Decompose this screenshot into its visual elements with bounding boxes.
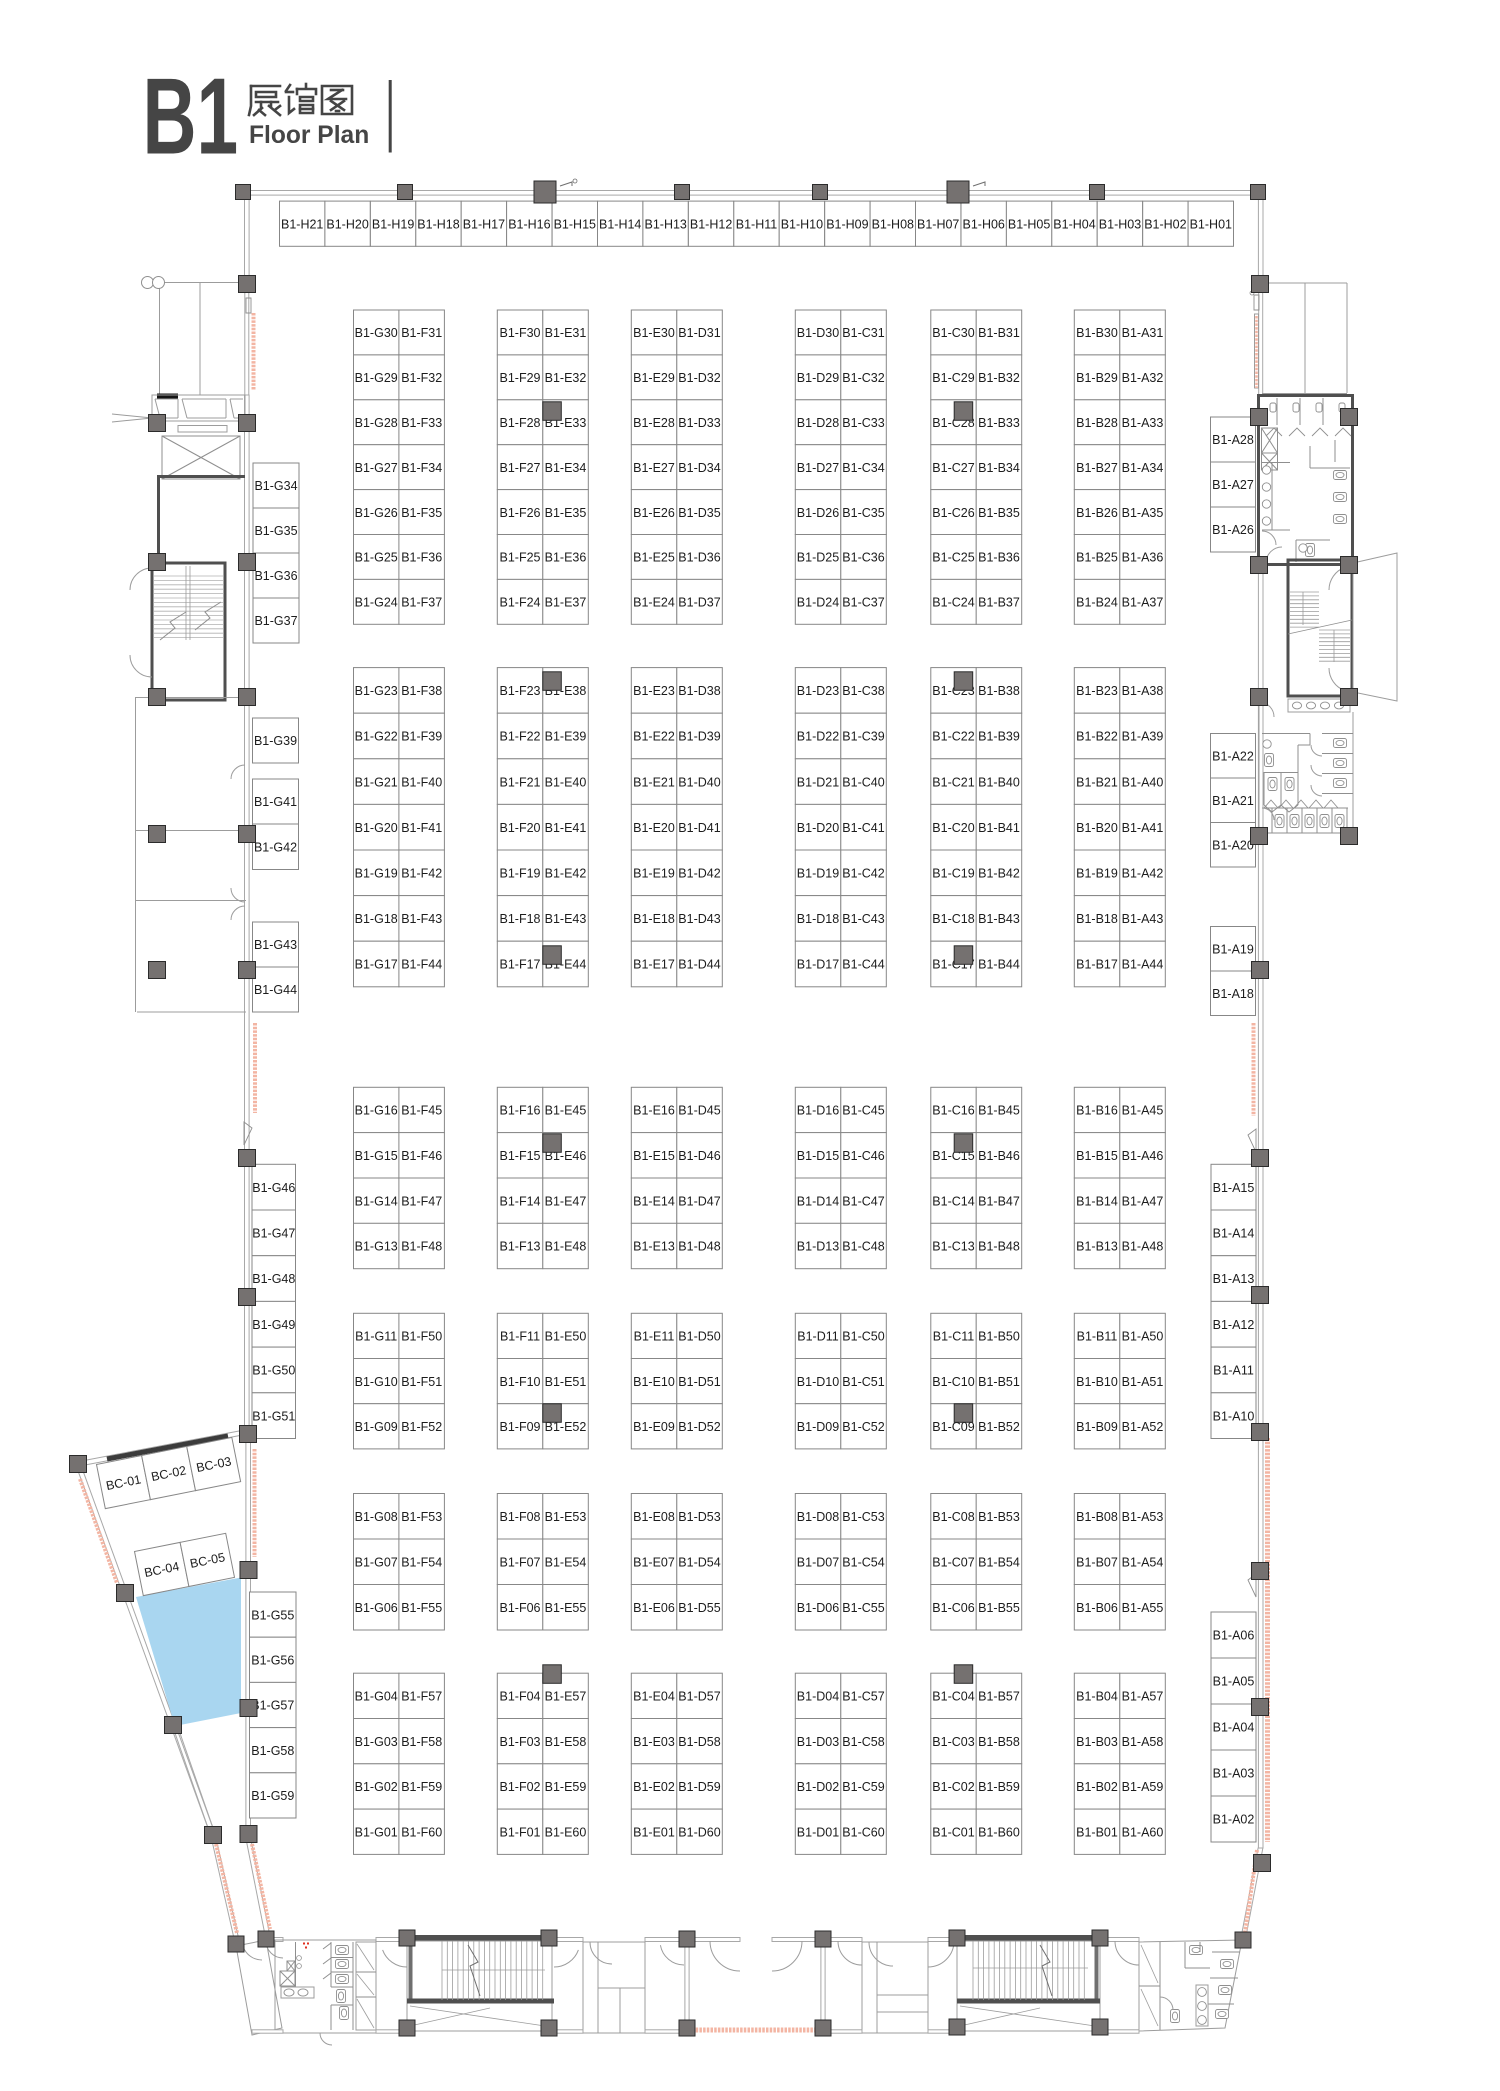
svg-text:B1-E36: B1-E36 <box>545 551 587 565</box>
svg-text:B1-E31: B1-E31 <box>545 326 587 340</box>
svg-text:B1-E03: B1-E03 <box>633 1735 675 1749</box>
svg-text:B1-A02: B1-A02 <box>1213 1813 1255 1827</box>
svg-text:B1-D22: B1-D22 <box>797 730 839 744</box>
svg-text:B1-F25: B1-F25 <box>500 551 541 565</box>
svg-text:B1-B32: B1-B32 <box>978 371 1020 385</box>
svg-text:B1-C42: B1-C42 <box>842 867 884 881</box>
svg-text:B1-D27: B1-D27 <box>797 461 839 475</box>
svg-text:B1-F39: B1-F39 <box>401 730 442 744</box>
svg-text:B1-E51: B1-E51 <box>545 1375 587 1389</box>
svg-text:B1-E16: B1-E16 <box>633 1104 675 1118</box>
svg-text:B1-F06: B1-F06 <box>500 1601 541 1615</box>
svg-text:B1-G25: B1-G25 <box>355 551 398 565</box>
svg-text:B1-F10: B1-F10 <box>500 1375 541 1389</box>
svg-text:B1-A12: B1-A12 <box>1213 1318 1255 1332</box>
svg-text:B1-D50: B1-D50 <box>678 1330 720 1344</box>
svg-text:B1-C52: B1-C52 <box>842 1420 884 1434</box>
svg-text:B1-A41: B1-A41 <box>1122 821 1164 835</box>
svg-text:B1-G20: B1-G20 <box>355 821 398 835</box>
svg-text:B1-A44: B1-A44 <box>1122 958 1164 972</box>
svg-text:B1-G18: B1-G18 <box>355 912 398 926</box>
svg-text:B1-F30: B1-F30 <box>500 326 541 340</box>
svg-text:B1-G22: B1-G22 <box>355 730 398 744</box>
svg-text:B1-E13: B1-E13 <box>633 1240 675 1254</box>
svg-text:B1-A46: B1-A46 <box>1122 1149 1164 1163</box>
svg-text:B1-G06: B1-G06 <box>355 1601 398 1615</box>
svg-text:B1-C60: B1-C60 <box>842 1826 884 1840</box>
svg-text:B1-G49: B1-G49 <box>252 1318 295 1332</box>
svg-text:B1-A37: B1-A37 <box>1122 596 1164 610</box>
svg-text:B1-A53: B1-A53 <box>1122 1510 1164 1524</box>
svg-text:B1-A28: B1-A28 <box>1212 433 1254 447</box>
svg-text:B1-B09: B1-B09 <box>1076 1420 1118 1434</box>
svg-text:B1-H17: B1-H17 <box>463 217 505 231</box>
svg-text:B1-A52: B1-A52 <box>1122 1420 1164 1434</box>
svg-text:B1-F02: B1-F02 <box>500 1780 541 1794</box>
svg-text:B1-H01: B1-H01 <box>1190 217 1232 231</box>
svg-text:B1-E02: B1-E02 <box>633 1780 675 1794</box>
svg-text:B1-C44: B1-C44 <box>842 958 884 972</box>
svg-text:B1-D54: B1-D54 <box>678 1556 720 1570</box>
svg-text:B1-E45: B1-E45 <box>545 1104 587 1118</box>
svg-text:B1-B28: B1-B28 <box>1076 416 1118 430</box>
svg-text:B1-D47: B1-D47 <box>678 1194 720 1208</box>
svg-text:B1-C08: B1-C08 <box>932 1510 974 1524</box>
svg-text:B1-H16: B1-H16 <box>508 217 550 231</box>
svg-text:B1-F38: B1-F38 <box>401 684 442 698</box>
svg-text:B1-B14: B1-B14 <box>1076 1194 1118 1208</box>
svg-text:B1-E11: B1-E11 <box>634 1330 675 1344</box>
svg-text:B1-H02: B1-H02 <box>1144 217 1186 231</box>
svg-text:B1-F47: B1-F47 <box>401 1194 442 1208</box>
svg-text:B1-F18: B1-F18 <box>500 912 541 926</box>
svg-text:B1-F16: B1-F16 <box>500 1104 541 1118</box>
svg-text:B1-D11: B1-D11 <box>797 1330 839 1344</box>
svg-text:B1-G43: B1-G43 <box>254 938 297 952</box>
svg-text:B1-A38: B1-A38 <box>1122 684 1164 698</box>
svg-text:B1-A43: B1-A43 <box>1122 912 1164 926</box>
svg-text:B1-F17: B1-F17 <box>500 958 541 972</box>
svg-text:B1-B34: B1-B34 <box>978 461 1020 475</box>
svg-text:B1-G01: B1-G01 <box>355 1826 398 1840</box>
svg-text:B1-F22: B1-F22 <box>500 730 541 744</box>
svg-text:B1-D18: B1-D18 <box>797 912 839 926</box>
svg-text:B1-A58: B1-A58 <box>1122 1735 1164 1749</box>
svg-text:B1-C25: B1-C25 <box>932 551 974 565</box>
svg-text:B1-G16: B1-G16 <box>355 1104 398 1118</box>
svg-text:B1-G11: B1-G11 <box>355 1330 397 1344</box>
svg-text:B1-B26: B1-B26 <box>1076 506 1118 520</box>
svg-text:B1-D20: B1-D20 <box>797 821 839 835</box>
svg-text:B1-D36: B1-D36 <box>678 551 720 565</box>
svg-text:B1-D45: B1-D45 <box>678 1104 720 1118</box>
svg-text:B1-C57: B1-C57 <box>842 1690 884 1704</box>
svg-text:B1-H14: B1-H14 <box>599 217 641 231</box>
svg-text:B1-E34: B1-E34 <box>545 461 587 475</box>
svg-text:B1-F33: B1-F33 <box>401 416 442 430</box>
svg-text:B1-B24: B1-B24 <box>1076 596 1118 610</box>
svg-text:B1-D52: B1-D52 <box>678 1420 720 1434</box>
svg-text:B1-F29: B1-F29 <box>500 371 541 385</box>
svg-text:B1-B58: B1-B58 <box>978 1735 1020 1749</box>
svg-text:B1-A03: B1-A03 <box>1213 1767 1255 1781</box>
svg-text:B1-F21: B1-F21 <box>500 775 541 789</box>
svg-text:B1-B27: B1-B27 <box>1076 461 1118 475</box>
svg-text:B1-B44: B1-B44 <box>978 958 1020 972</box>
svg-text:B1-E29: B1-E29 <box>633 371 675 385</box>
svg-text:B1-D42: B1-D42 <box>678 867 720 881</box>
svg-text:B1-F24: B1-F24 <box>500 596 541 610</box>
svg-text:B1-C59: B1-C59 <box>842 1780 884 1794</box>
svg-text:B1-H09: B1-H09 <box>826 217 868 231</box>
svg-text:B1-C02: B1-C02 <box>932 1780 974 1794</box>
svg-text:B1-E37: B1-E37 <box>545 596 587 610</box>
svg-text:B1-D25: B1-D25 <box>797 551 839 565</box>
svg-text:B1-D29: B1-D29 <box>797 371 839 385</box>
svg-text:B1-E43: B1-E43 <box>545 912 587 926</box>
svg-text:B1-G39: B1-G39 <box>254 734 297 748</box>
svg-text:B1-D59: B1-D59 <box>678 1780 720 1794</box>
svg-text:B1-G56: B1-G56 <box>251 1654 294 1668</box>
svg-text:B1-B43: B1-B43 <box>978 912 1020 926</box>
svg-text:B1-A10: B1-A10 <box>1213 1409 1255 1423</box>
svg-text:B1-A14: B1-A14 <box>1213 1227 1255 1241</box>
svg-text:B1-E32: B1-E32 <box>545 371 587 385</box>
svg-text:B1-F34: B1-F34 <box>401 461 442 475</box>
svg-text:B1-E25: B1-E25 <box>633 551 675 565</box>
svg-text:B1-B47: B1-B47 <box>978 1194 1020 1208</box>
svg-text:B1-E60: B1-E60 <box>545 1826 587 1840</box>
svg-text:B1-G15: B1-G15 <box>355 1149 398 1163</box>
svg-text:B1-B37: B1-B37 <box>978 596 1020 610</box>
svg-text:B1-C50: B1-C50 <box>842 1330 884 1344</box>
svg-text:B1-E19: B1-E19 <box>633 867 675 881</box>
svg-text:B1-F04: B1-F04 <box>500 1690 541 1704</box>
svg-text:B1-C27: B1-C27 <box>932 461 974 475</box>
svg-text:B1-B35: B1-B35 <box>978 506 1020 520</box>
svg-text:B1-F60: B1-F60 <box>401 1826 442 1840</box>
svg-text:B1-A33: B1-A33 <box>1122 416 1164 430</box>
svg-text:B1-C18: B1-C18 <box>932 912 974 926</box>
svg-text:B1-G14: B1-G14 <box>355 1194 398 1208</box>
svg-text:B1-E41: B1-E41 <box>545 821 587 835</box>
svg-text:B1-D48: B1-D48 <box>678 1240 720 1254</box>
svg-text:B1-C29: B1-C29 <box>932 371 974 385</box>
svg-text:B1-D19: B1-D19 <box>797 867 839 881</box>
svg-text:B1-C30: B1-C30 <box>932 326 974 340</box>
svg-text:B1-G17: B1-G17 <box>355 958 398 972</box>
svg-text:B1-C21: B1-C21 <box>932 775 974 789</box>
svg-text:B1-F48: B1-F48 <box>401 1240 442 1254</box>
svg-text:B1-E18: B1-E18 <box>633 912 675 926</box>
svg-text:B1-G24: B1-G24 <box>355 596 398 610</box>
svg-text:B1-C54: B1-C54 <box>842 1556 884 1570</box>
svg-text:B1-H08: B1-H08 <box>872 217 914 231</box>
svg-text:B1-D43: B1-D43 <box>678 912 720 926</box>
svg-text:B1-F23: B1-F23 <box>500 684 541 698</box>
svg-text:B1-F44: B1-F44 <box>401 958 442 972</box>
svg-text:B1-E30: B1-E30 <box>633 326 675 340</box>
svg-text:B1-G34: B1-G34 <box>254 479 297 493</box>
svg-text:B1-B17: B1-B17 <box>1076 958 1118 972</box>
svg-text:B1-G41: B1-G41 <box>254 795 297 809</box>
svg-text:B1-C03: B1-C03 <box>932 1735 974 1749</box>
svg-text:B1-C20: B1-C20 <box>932 821 974 835</box>
svg-text:B1-B19: B1-B19 <box>1076 867 1118 881</box>
svg-text:B1-F50: B1-F50 <box>401 1330 442 1344</box>
svg-text:B1-F42: B1-F42 <box>401 867 442 881</box>
svg-text:B1-B41: B1-B41 <box>978 821 1020 835</box>
svg-text:B1-E24: B1-E24 <box>633 596 675 610</box>
svg-text:B1-B22: B1-B22 <box>1076 730 1118 744</box>
svg-text:B1-A34: B1-A34 <box>1122 461 1164 475</box>
svg-text:B1-G35: B1-G35 <box>254 524 297 538</box>
svg-text:B1-H21: B1-H21 <box>281 217 323 231</box>
svg-text:B1-D33: B1-D33 <box>678 416 720 430</box>
svg-text:B1-D04: B1-D04 <box>797 1690 839 1704</box>
svg-text:B1-C11: B1-C11 <box>933 1330 975 1344</box>
svg-text:B1-E27: B1-E27 <box>633 461 675 475</box>
svg-text:B1-D02: B1-D02 <box>797 1780 839 1794</box>
svg-text:B1-E48: B1-E48 <box>545 1240 587 1254</box>
svg-text:B1-A06: B1-A06 <box>1213 1629 1255 1643</box>
svg-text:B1-E22: B1-E22 <box>633 730 675 744</box>
svg-text:B1-C22: B1-C22 <box>932 730 974 744</box>
svg-text:B1-E21: B1-E21 <box>633 775 675 789</box>
svg-text:B1-F26: B1-F26 <box>500 506 541 520</box>
svg-text:B1-D01: B1-D01 <box>797 1826 839 1840</box>
svg-text:B1-F13: B1-F13 <box>500 1240 541 1254</box>
svg-text:B1-G08: B1-G08 <box>355 1510 398 1524</box>
svg-text:B1-G10: B1-G10 <box>355 1375 398 1389</box>
svg-text:B1-D14: B1-D14 <box>797 1194 839 1208</box>
svg-text:B1-C58: B1-C58 <box>842 1735 884 1749</box>
svg-text:B1-D30: B1-D30 <box>797 326 839 340</box>
svg-text:B1-D60: B1-D60 <box>678 1826 720 1840</box>
svg-text:B1-A50: B1-A50 <box>1122 1330 1164 1344</box>
svg-text:B1-G50: B1-G50 <box>252 1364 295 1378</box>
svg-text:B1-G02: B1-G02 <box>355 1780 398 1794</box>
svg-text:B1-G03: B1-G03 <box>355 1735 398 1749</box>
svg-text:B1-B36: B1-B36 <box>978 551 1020 565</box>
svg-text:B1-C06: B1-C06 <box>932 1601 974 1615</box>
svg-text:B1-E54: B1-E54 <box>545 1556 587 1570</box>
svg-text:B1-C07: B1-C07 <box>932 1556 974 1570</box>
svg-text:B1-G57: B1-G57 <box>251 1699 294 1713</box>
svg-text:B1-F08: B1-F08 <box>500 1510 541 1524</box>
svg-text:B1-H19: B1-H19 <box>372 217 414 231</box>
svg-text:B1-G44: B1-G44 <box>254 983 297 997</box>
svg-text:B1-B29: B1-B29 <box>1076 371 1118 385</box>
svg-text:B1-B02: B1-B02 <box>1076 1780 1118 1794</box>
svg-text:B1-D09: B1-D09 <box>797 1420 839 1434</box>
svg-text:B1-E20: B1-E20 <box>633 821 675 835</box>
svg-text:B1-A15: B1-A15 <box>1213 1181 1255 1195</box>
svg-text:B1-E10: B1-E10 <box>633 1375 675 1389</box>
svg-text:B1-E55: B1-E55 <box>545 1601 587 1615</box>
svg-text:B1-F52: B1-F52 <box>401 1420 442 1434</box>
svg-text:B1-B33: B1-B33 <box>978 416 1020 430</box>
svg-text:B1-A35: B1-A35 <box>1122 506 1164 520</box>
svg-text:B1-H13: B1-H13 <box>645 217 687 231</box>
svg-text:B1-C32: B1-C32 <box>842 371 884 385</box>
svg-text:B1-B54: B1-B54 <box>978 1556 1020 1570</box>
svg-text:B1-B53: B1-B53 <box>978 1510 1020 1524</box>
svg-text:B1-H18: B1-H18 <box>417 217 459 231</box>
svg-text:B1-E28: B1-E28 <box>633 416 675 430</box>
svg-text:B1-C46: B1-C46 <box>842 1149 884 1163</box>
svg-text:B1-A18: B1-A18 <box>1212 987 1254 1001</box>
svg-text:B1-B15: B1-B15 <box>1076 1149 1118 1163</box>
svg-text:B1-E39: B1-E39 <box>545 730 587 744</box>
svg-text:B1-E23: B1-E23 <box>633 684 675 698</box>
svg-text:B1-C33: B1-C33 <box>842 416 884 430</box>
svg-text:B1-F11: B1-F11 <box>500 1330 540 1344</box>
svg-text:B1-B06: B1-B06 <box>1076 1601 1118 1615</box>
svg-text:B1-B38: B1-B38 <box>978 684 1020 698</box>
svg-text:B1-A19: B1-A19 <box>1212 943 1254 957</box>
svg-text:B1-D57: B1-D57 <box>678 1690 720 1704</box>
svg-text:B1-B59: B1-B59 <box>978 1780 1020 1794</box>
svg-text:B1-C34: B1-C34 <box>842 461 884 475</box>
svg-text:B1-D41: B1-D41 <box>678 821 720 835</box>
svg-text:B1-G28: B1-G28 <box>355 416 398 430</box>
svg-text:B1-A42: B1-A42 <box>1122 867 1164 881</box>
svg-text:B1-D03: B1-D03 <box>797 1735 839 1749</box>
svg-text:B1-E57: B1-E57 <box>545 1690 587 1704</box>
svg-text:B1-C53: B1-C53 <box>842 1510 884 1524</box>
svg-text:B1-G59: B1-G59 <box>251 1789 294 1803</box>
svg-text:B1-C24: B1-C24 <box>932 596 974 610</box>
svg-text:B1-F35: B1-F35 <box>401 506 442 520</box>
svg-text:B1-E14: B1-E14 <box>633 1194 675 1208</box>
svg-text:B1-G29: B1-G29 <box>355 371 398 385</box>
svg-text:B1-B18: B1-B18 <box>1076 912 1118 926</box>
svg-text:B1-D23: B1-D23 <box>797 684 839 698</box>
svg-text:B1-F46: B1-F46 <box>401 1149 442 1163</box>
svg-text:B1-F55: B1-F55 <box>401 1601 442 1615</box>
svg-text:B1-D38: B1-D38 <box>678 684 720 698</box>
svg-text:B1-E15: B1-E15 <box>633 1149 675 1163</box>
svg-text:B1-D55: B1-D55 <box>678 1601 720 1615</box>
svg-text:B1-A05: B1-A05 <box>1213 1675 1255 1689</box>
svg-text:B1-B08: B1-B08 <box>1076 1510 1118 1524</box>
svg-text:B1-A57: B1-A57 <box>1122 1690 1164 1704</box>
svg-text:B1-B45: B1-B45 <box>978 1104 1020 1118</box>
svg-text:B1-D15: B1-D15 <box>797 1149 839 1163</box>
svg-text:B1-D10: B1-D10 <box>797 1375 839 1389</box>
svg-text:B1-E47: B1-E47 <box>545 1194 587 1208</box>
svg-text:B1-B20: B1-B20 <box>1076 821 1118 835</box>
svg-text:B1-A59: B1-A59 <box>1122 1780 1164 1794</box>
svg-text:B1-H20: B1-H20 <box>326 217 368 231</box>
svg-text:B1-F32: B1-F32 <box>401 371 442 385</box>
svg-text:B1-D34: B1-D34 <box>678 461 720 475</box>
svg-text:B1-F53: B1-F53 <box>401 1510 442 1524</box>
svg-text:B1-B07: B1-B07 <box>1076 1556 1118 1570</box>
svg-text:B1-C26: B1-C26 <box>932 506 974 520</box>
svg-text:B1-B10: B1-B10 <box>1076 1375 1118 1389</box>
svg-text:B1-C10: B1-C10 <box>932 1375 974 1389</box>
svg-text:B1-G04: B1-G04 <box>355 1690 398 1704</box>
svg-text:B1-E42: B1-E42 <box>545 867 587 881</box>
svg-text:B1-D24: B1-D24 <box>797 596 839 610</box>
svg-text:B1-D37: B1-D37 <box>678 596 720 610</box>
svg-text:B1-A22: B1-A22 <box>1212 750 1254 764</box>
svg-text:B1-B03: B1-B03 <box>1076 1735 1118 1749</box>
svg-text:B1-D35: B1-D35 <box>678 506 720 520</box>
svg-text:B1-E58: B1-E58 <box>545 1735 587 1749</box>
svg-text:B1-D06: B1-D06 <box>797 1601 839 1615</box>
svg-text:B1-E01: B1-E01 <box>633 1826 675 1840</box>
svg-text:Floor Plan: Floor Plan <box>249 122 369 149</box>
svg-text:B1-F14: B1-F14 <box>500 1194 541 1208</box>
svg-text:B1-A40: B1-A40 <box>1122 775 1164 789</box>
svg-text:B1-E08: B1-E08 <box>633 1510 675 1524</box>
svg-text:B1-C36: B1-C36 <box>842 551 884 565</box>
svg-text:B1-A20: B1-A20 <box>1212 839 1254 853</box>
svg-text:B1-E17: B1-E17 <box>633 958 675 972</box>
svg-text:B1-C47: B1-C47 <box>842 1194 884 1208</box>
svg-text:B1-D13: B1-D13 <box>797 1240 839 1254</box>
svg-text:B1-A51: B1-A51 <box>1122 1375 1164 1389</box>
svg-text:B1-F37: B1-F37 <box>401 596 442 610</box>
svg-text:B1-G19: B1-G19 <box>355 867 398 881</box>
svg-text:B1-G13: B1-G13 <box>355 1240 398 1254</box>
svg-text:B1-B52: B1-B52 <box>978 1420 1020 1434</box>
svg-text:B1-B46: B1-B46 <box>978 1149 1020 1163</box>
svg-text:B1-C51: B1-C51 <box>842 1375 884 1389</box>
svg-text:B1-A48: B1-A48 <box>1122 1240 1164 1254</box>
svg-text:B1-B04: B1-B04 <box>1076 1690 1118 1704</box>
svg-text:B1-F31: B1-F31 <box>401 326 442 340</box>
svg-text:B1-G58: B1-G58 <box>251 1744 294 1758</box>
svg-text:B1-C35: B1-C35 <box>842 506 884 520</box>
svg-text:B1-F01: B1-F01 <box>500 1826 541 1840</box>
svg-text:B1-B11: B1-B11 <box>1077 1330 1118 1344</box>
svg-text:B1-A60: B1-A60 <box>1122 1826 1164 1840</box>
svg-text:B1-C41: B1-C41 <box>842 821 884 835</box>
svg-text:B1-C19: B1-C19 <box>932 867 974 881</box>
svg-text:B1-E53: B1-E53 <box>545 1510 587 1524</box>
svg-text:B1-D39: B1-D39 <box>678 730 720 744</box>
svg-text:B1-C13: B1-C13 <box>932 1240 974 1254</box>
svg-text:B1-G23: B1-G23 <box>355 684 398 698</box>
svg-text:B1-A26: B1-A26 <box>1212 523 1254 537</box>
svg-text:B1-C38: B1-C38 <box>842 684 884 698</box>
svg-text:B1-E04: B1-E04 <box>633 1690 675 1704</box>
svg-text:B1-A11: B1-A11 <box>1213 1364 1254 1378</box>
svg-text:B1-B55: B1-B55 <box>978 1601 1020 1615</box>
svg-text:B1-G55: B1-G55 <box>251 1608 294 1622</box>
svg-text:B1-H15: B1-H15 <box>554 217 596 231</box>
svg-text:B1-F51: B1-F51 <box>401 1375 442 1389</box>
svg-text:B1-F28: B1-F28 <box>500 416 541 430</box>
svg-text:B1-C43: B1-C43 <box>842 912 884 926</box>
svg-text:B1-D08: B1-D08 <box>797 1510 839 1524</box>
svg-text:B1-F58: B1-F58 <box>401 1735 442 1749</box>
svg-text:B1-B21: B1-B21 <box>1076 775 1118 789</box>
svg-text:B1-D31: B1-D31 <box>678 326 720 340</box>
svg-text:B1-D58: B1-D58 <box>678 1735 720 1749</box>
svg-text:B1-D51: B1-D51 <box>678 1375 720 1389</box>
svg-text:B1-G27: B1-G27 <box>355 461 398 475</box>
svg-text:B1-C45: B1-C45 <box>842 1104 884 1118</box>
svg-text:B1-G36: B1-G36 <box>254 569 297 583</box>
svg-text:B1-F41: B1-F41 <box>401 821 442 835</box>
svg-text:B1-G47: B1-G47 <box>252 1227 295 1241</box>
svg-text:B1-E35: B1-E35 <box>545 506 587 520</box>
